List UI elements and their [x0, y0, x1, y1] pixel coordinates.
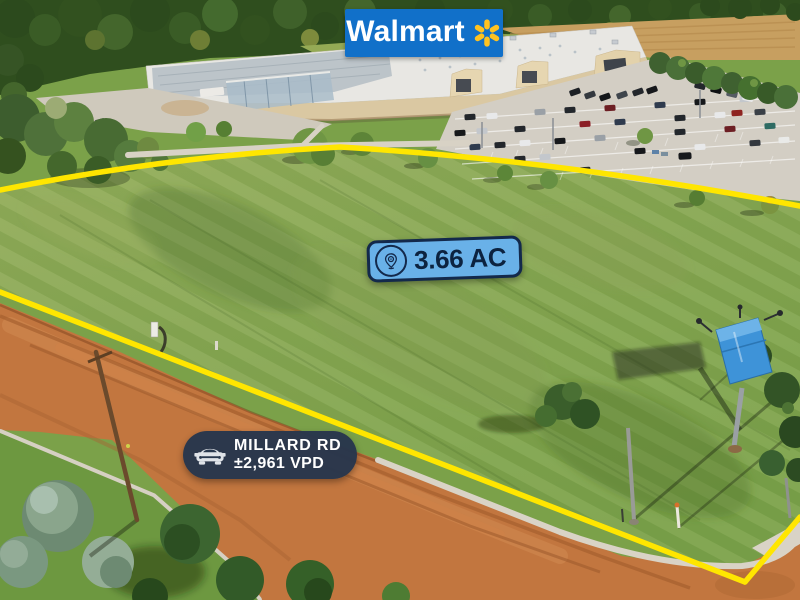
acreage-badge: 3.66 AC [366, 235, 523, 282]
aerial-scene [0, 0, 800, 600]
road-traffic-badge: MILLARD RD ±2,961 VPD [183, 431, 357, 479]
location-pin-icon [382, 252, 401, 271]
traffic-count: ±2,961 VPD [234, 455, 342, 473]
walmart-spark-icon [472, 18, 502, 48]
driving-car [678, 152, 691, 160]
car-front-icon [194, 443, 226, 467]
walmart-label: Walmart [346, 17, 465, 49]
parking-lot-tree [637, 128, 653, 144]
road-name: MILLARD RD [234, 437, 342, 455]
walmart-brand-badge: Walmart [345, 9, 503, 57]
cart-corral [652, 150, 659, 154]
acreage-label: 3.66 AC [414, 244, 507, 273]
pin-circle [374, 244, 407, 277]
aerial-photo: Walmart 3.66 AC [0, 0, 800, 600]
